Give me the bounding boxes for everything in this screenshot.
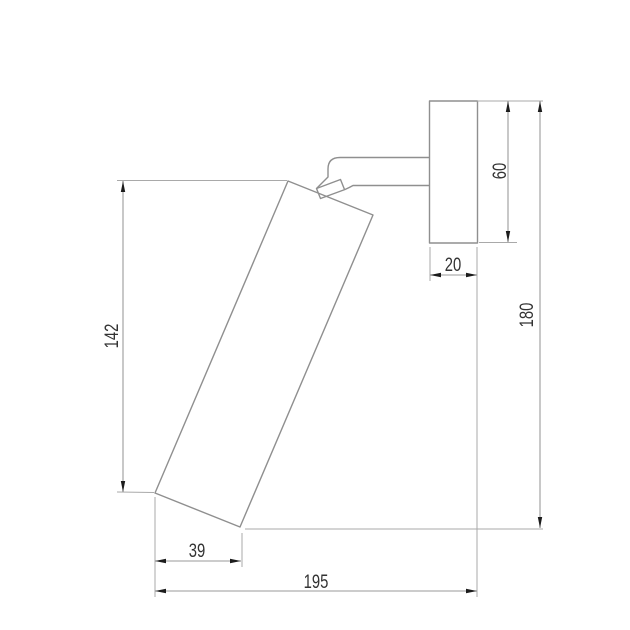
arrow-down-icon bbox=[121, 481, 125, 492]
mount-arm bbox=[317, 158, 431, 199]
lamp-body bbox=[155, 181, 373, 527]
dim-label-39: 39 bbox=[189, 540, 205, 561]
arrow-left-icon bbox=[155, 559, 166, 563]
arrow-left-icon bbox=[430, 273, 441, 277]
extension-lines bbox=[117, 101, 543, 597]
arrow-right-icon bbox=[466, 589, 477, 593]
arrow-up-icon bbox=[121, 181, 125, 192]
arrow-right-icon bbox=[230, 559, 241, 563]
wall-lamp-dimension-drawing: 142 60 180 20 39 195 bbox=[0, 0, 630, 630]
dim-label-142: 142 bbox=[101, 324, 122, 349]
arrow-up-icon bbox=[506, 101, 510, 112]
arrow-left-icon bbox=[155, 589, 166, 593]
dim-label-20: 20 bbox=[445, 254, 461, 275]
dim-label-60: 60 bbox=[489, 163, 510, 179]
lamp-object bbox=[155, 101, 478, 527]
wall-plate bbox=[430, 101, 478, 243]
arrow-right-icon bbox=[466, 273, 477, 277]
arrow-down-icon bbox=[506, 231, 510, 242]
dim-label-180: 180 bbox=[516, 303, 537, 328]
dimension-arrows bbox=[121, 101, 542, 593]
ext-142-bottom bbox=[117, 492, 154, 493]
arrow-down-icon bbox=[538, 517, 542, 528]
arrow-up-icon bbox=[538, 101, 542, 112]
dim-label-195: 195 bbox=[304, 571, 329, 592]
technical-drawing-page: 142 60 180 20 39 195 bbox=[0, 0, 630, 630]
